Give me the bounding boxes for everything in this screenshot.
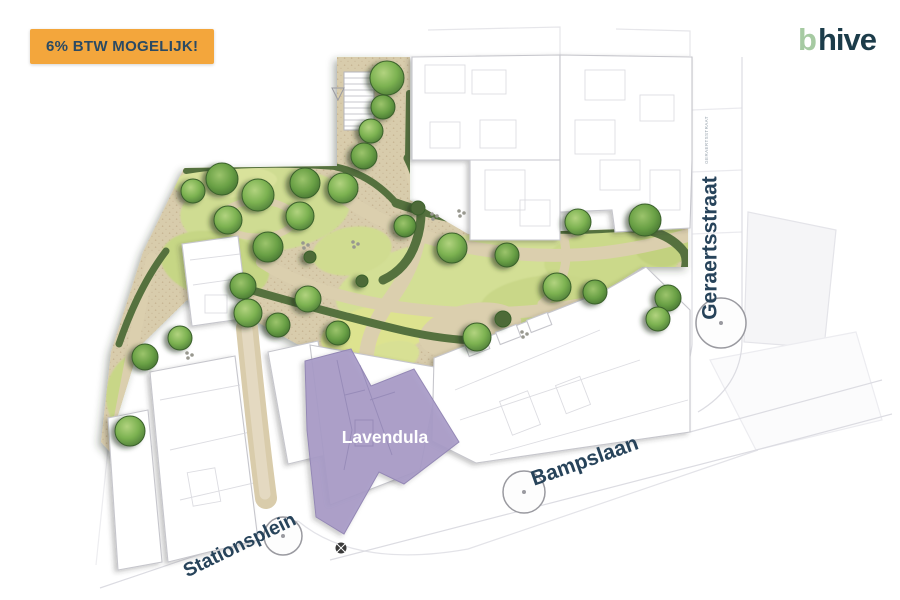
tree-icon [286, 202, 314, 230]
tree-icon [463, 323, 491, 351]
tree-icon [629, 204, 661, 236]
logo-name: hive [818, 22, 876, 57]
street-micro-label: GERAERTSSTRAAT [704, 116, 709, 164]
promo-badge-label: 6% BTW MOGELIJK! [46, 38, 198, 55]
tree-icon [290, 168, 320, 198]
tree-icon [583, 280, 607, 304]
tree-icon [326, 321, 350, 345]
unit-label-lavendula[interactable]: Lavendula [342, 427, 429, 447]
tree-icon [295, 286, 321, 312]
street-label-geraertsstraat: Geraertsstraat [699, 176, 722, 320]
tree-icon [543, 273, 571, 301]
tree-icon [230, 273, 256, 299]
page: Geraertsstraat GERAERTSSTRAAT Bampslaan … [0, 0, 900, 600]
tree-icon [234, 299, 262, 327]
bhive-logo: bhive [798, 22, 876, 58]
tree-icon [253, 232, 283, 262]
tree-icon [394, 215, 416, 237]
tree-icon [206, 163, 238, 195]
tree-icon [242, 179, 274, 211]
manhole-icon [336, 543, 347, 554]
tree-icon [214, 206, 242, 234]
tree-icon [565, 209, 591, 235]
tree-icon [371, 95, 395, 119]
tree-icon [168, 326, 192, 350]
logo-mark: b [798, 22, 816, 57]
tree-icon [351, 143, 377, 169]
tree-icon [181, 179, 205, 203]
tree-icon [359, 119, 383, 143]
tree-icon [328, 173, 358, 203]
bush-icon [411, 201, 425, 215]
tree-icon [132, 344, 158, 370]
tree-icon [646, 307, 670, 331]
tree-icon [266, 313, 290, 337]
promo-badge: 6% BTW MOGELIJK! [30, 29, 214, 64]
tree-icon [495, 243, 519, 267]
tree-icon [437, 233, 467, 263]
tree-icon [370, 61, 404, 95]
bush-icon [495, 311, 511, 327]
tree-icon [115, 416, 145, 446]
bush-icon [304, 251, 316, 263]
site-plan: Geraertsstraat GERAERTSSTRAAT Bampslaan … [0, 0, 900, 600]
bush-icon [356, 275, 368, 287]
